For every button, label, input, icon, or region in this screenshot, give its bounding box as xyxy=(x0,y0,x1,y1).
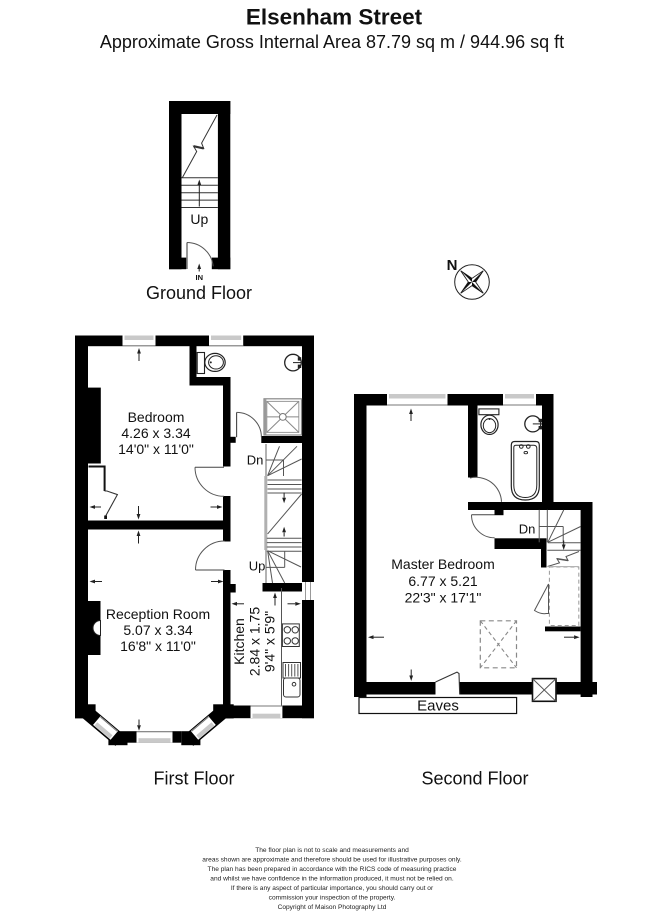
svg-text:Eaves: Eaves xyxy=(417,698,459,715)
svg-text:4.26 x 3.34: 4.26 x 3.34 xyxy=(121,425,190,441)
svg-text:commission your inspection of: commission your inspection of the proper… xyxy=(269,895,396,902)
svg-text:If there is any aspect of part: If there is any aspect of particular imp… xyxy=(231,885,434,892)
svg-text:First Floor: First Floor xyxy=(154,769,235,789)
svg-text:The plan has been prepared in: The plan has been prepared in accordance… xyxy=(208,866,457,873)
svg-text:Dn: Dn xyxy=(247,453,264,468)
svg-text:9'4" x 5'9": 9'4" x 5'9" xyxy=(262,611,278,672)
svg-text:Master Bedroom: Master Bedroom xyxy=(391,556,494,572)
svg-text:Kitchen: Kitchen xyxy=(231,618,247,665)
svg-text:Bedroom: Bedroom xyxy=(128,409,185,425)
svg-text:Second Floor: Second Floor xyxy=(421,769,528,789)
svg-text:6.77 x 5.21: 6.77 x 5.21 xyxy=(408,573,477,589)
svg-text:2.84 x 1.75: 2.84 x 1.75 xyxy=(247,607,263,676)
svg-text:Approximate Gross Internal Are: Approximate Gross Internal Area 87.79 sq… xyxy=(100,32,564,52)
svg-text:Up: Up xyxy=(249,559,266,574)
svg-text:16'8" x 11'0": 16'8" x 11'0" xyxy=(120,638,196,654)
svg-text:22'3" x 17'1": 22'3" x 17'1" xyxy=(405,590,482,606)
svg-text:areas shown are approximate an: areas shown are approximate and therefor… xyxy=(202,857,462,864)
svg-text:IN: IN xyxy=(196,273,204,282)
svg-text:and whilst we have confidence: and whilst we have confidence in the inf… xyxy=(210,876,454,883)
svg-text:The floor plan is not to scale: The floor plan is not to scale and measu… xyxy=(255,847,409,854)
svg-text:14'0" x 11'0": 14'0" x 11'0" xyxy=(118,441,194,457)
svg-text:Up: Up xyxy=(190,211,208,227)
svg-text:Copyright of Maison Photograph: Copyright of Maison Photography Ltd xyxy=(278,904,387,911)
svg-text:Ground Floor: Ground Floor xyxy=(146,283,252,303)
svg-text:5.07 x 3.34: 5.07 x 3.34 xyxy=(123,622,192,638)
svg-text:Dn: Dn xyxy=(519,522,536,537)
svg-text:Reception Room: Reception Room xyxy=(106,606,210,622)
svg-text:Elsenham Street: Elsenham Street xyxy=(246,5,423,30)
svg-text:N: N xyxy=(447,257,458,274)
